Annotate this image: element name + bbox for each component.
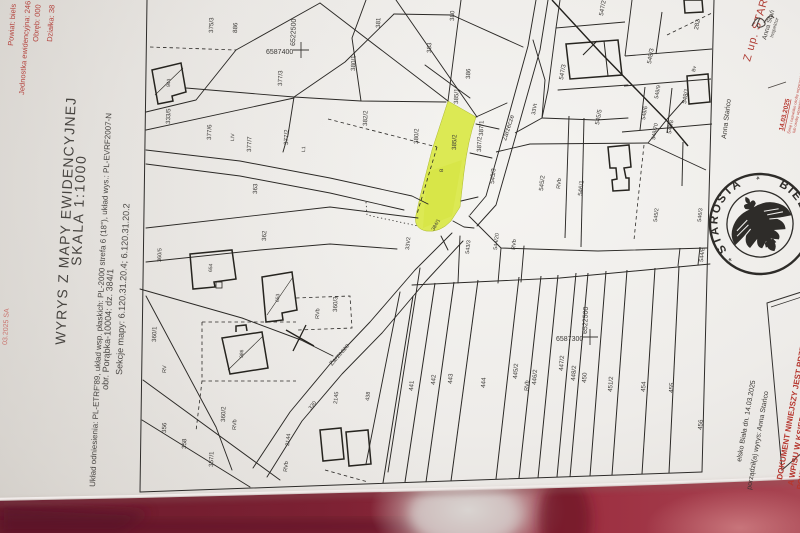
svg-text:6587400: 6587400 bbox=[266, 49, 293, 56]
svg-text:442: 442 bbox=[430, 374, 438, 385]
svg-text:RV: RV bbox=[162, 365, 168, 373]
svg-text:387/2: 387/2 bbox=[476, 136, 484, 152]
svg-text:448/2: 448/2 bbox=[570, 365, 578, 381]
svg-text:377/3: 377/3 bbox=[277, 70, 285, 86]
svg-text:943: 943 bbox=[166, 78, 172, 87]
svg-text:6587300: 6587300 bbox=[556, 336, 583, 343]
svg-text:377/7: 377/7 bbox=[246, 136, 254, 152]
svg-text:2144: 2144 bbox=[285, 433, 292, 446]
svg-text:RVb: RVb bbox=[315, 308, 321, 319]
svg-text:360/3: 360/3 bbox=[332, 296, 340, 312]
svg-text:654: 654 bbox=[208, 263, 214, 272]
svg-text:986: 986 bbox=[239, 349, 245, 358]
svg-text:456: 456 bbox=[697, 419, 705, 430]
svg-text:438: 438 bbox=[365, 391, 372, 401]
svg-text:RVb: RVb bbox=[511, 239, 518, 250]
svg-text:385/2: 385/2 bbox=[451, 134, 459, 150]
svg-text:357/1: 357/1 bbox=[208, 451, 216, 467]
svg-text:333/5: 333/5 bbox=[165, 108, 173, 124]
svg-text:RVb: RVb bbox=[524, 380, 531, 391]
svg-text:387/1: 387/1 bbox=[478, 120, 486, 136]
svg-text:381: 381 bbox=[375, 17, 382, 28]
svg-text:455: 455 bbox=[668, 382, 676, 393]
svg-text:447/2: 447/2 bbox=[558, 355, 566, 371]
svg-text:358: 358 bbox=[181, 438, 188, 449]
svg-text:886: 886 bbox=[232, 22, 239, 33]
svg-text:6522500: 6522500 bbox=[582, 306, 590, 334]
svg-text:653: 653 bbox=[275, 293, 281, 302]
svg-text:360/5: 360/5 bbox=[157, 248, 163, 262]
svg-text:446/2: 446/2 bbox=[531, 369, 539, 385]
svg-text:443: 443 bbox=[447, 373, 455, 384]
svg-text:451/2: 451/2 bbox=[607, 376, 615, 392]
svg-text:377/2: 377/2 bbox=[283, 129, 291, 145]
svg-text:377/6: 377/6 bbox=[206, 124, 214, 140]
svg-text:450: 450 bbox=[581, 372, 589, 383]
svg-text:L1: L1 bbox=[301, 146, 307, 152]
svg-text:445/2: 445/2 bbox=[512, 363, 520, 379]
svg-text:383: 383 bbox=[426, 42, 433, 53]
svg-text:RVb: RVb bbox=[556, 178, 563, 189]
svg-text:375/3: 375/3 bbox=[208, 17, 216, 33]
svg-text:6522500: 6522500 bbox=[290, 18, 298, 46]
svg-text:454: 454 bbox=[640, 381, 648, 392]
svg-text:380/2: 380/2 bbox=[413, 128, 421, 144]
svg-text:356: 356 bbox=[161, 422, 168, 433]
svg-text:444: 444 bbox=[480, 377, 488, 388]
svg-text:380/1: 380/1 bbox=[350, 55, 358, 71]
svg-text:362: 362 bbox=[261, 230, 268, 241]
svg-text:385/1: 385/1 bbox=[453, 88, 461, 104]
svg-text:363: 363 bbox=[252, 183, 259, 194]
svg-text:360/2: 360/2 bbox=[220, 406, 228, 422]
svg-text:386: 386 bbox=[465, 68, 472, 79]
svg-text:380: 380 bbox=[449, 10, 456, 21]
svg-text:441: 441 bbox=[408, 380, 416, 391]
svg-text:RVb: RVb bbox=[232, 419, 238, 430]
svg-text:360/1: 360/1 bbox=[151, 326, 159, 342]
svg-text:LIV: LIV bbox=[230, 133, 236, 141]
svg-text:RVb: RVb bbox=[283, 461, 290, 472]
svg-text:382/2: 382/2 bbox=[362, 110, 370, 126]
svg-text:2145: 2145 bbox=[333, 391, 340, 404]
